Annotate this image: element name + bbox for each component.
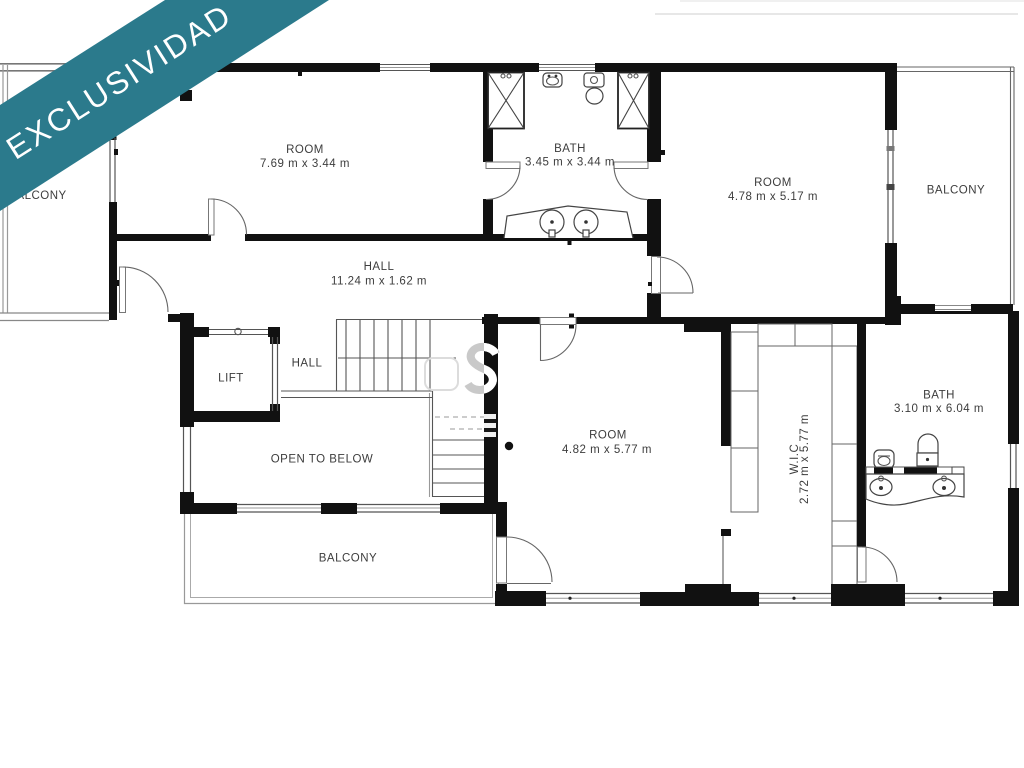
svg-text:ROOM: ROOM — [754, 177, 792, 189]
svg-text:3.10 m x 6.04 m: 3.10 m x 6.04 m — [894, 403, 984, 415]
svg-text:7.69 m x 3.44 m: 7.69 m x 3.44 m — [260, 158, 350, 170]
svg-text:ROOM: ROOM — [286, 144, 324, 156]
svg-text:BATH: BATH — [923, 390, 955, 402]
svg-text:OPEN TO BELOW: OPEN TO BELOW — [271, 454, 374, 466]
svg-text:LIFT: LIFT — [218, 373, 244, 385]
svg-text:BALCONY: BALCONY — [319, 553, 377, 565]
svg-text:4.78 m x 5.17 m: 4.78 m x 5.17 m — [728, 191, 818, 203]
svg-text:2.72 m x 5.77 m: 2.72 m x 5.77 m — [799, 414, 811, 504]
svg-text:4.82 m x 5.77 m: 4.82 m x 5.77 m — [562, 444, 652, 456]
svg-text:11.24 m x 1.62 m: 11.24 m x 1.62 m — [331, 276, 427, 288]
svg-text:ROOM: ROOM — [589, 430, 627, 442]
svg-text:HALL: HALL — [364, 261, 395, 273]
svg-text:BATH: BATH — [554, 143, 586, 155]
svg-text:BALCONY: BALCONY — [927, 185, 985, 197]
svg-text:HALL: HALL — [292, 358, 323, 370]
svg-text:3.45 m x 3.44 m: 3.45 m x 3.44 m — [525, 157, 615, 169]
